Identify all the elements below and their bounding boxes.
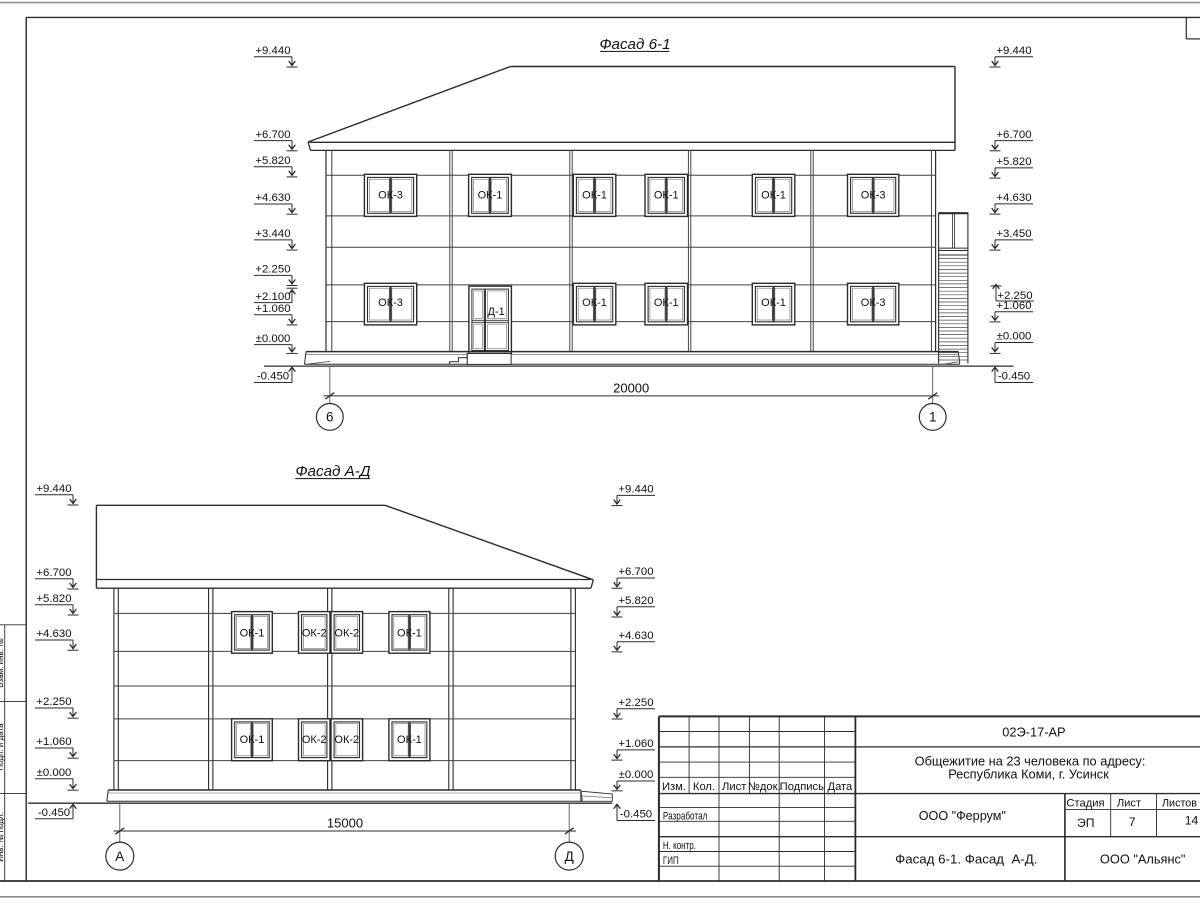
svg-text:±0.000: ±0.000 — [997, 331, 1032, 343]
svg-text:ОК-1: ОК-1 — [397, 734, 422, 746]
svg-text:Д-1: Д-1 — [487, 306, 504, 318]
svg-text:ОК-1: ОК-1 — [654, 189, 679, 201]
svg-text:+6.700: +6.700 — [618, 566, 653, 578]
svg-text:Кол.: Кол. — [693, 781, 715, 793]
svg-text:7: 7 — [1129, 815, 1136, 829]
svg-text:+3.450: +3.450 — [996, 228, 1031, 240]
svg-text:-0.450: -0.450 — [620, 809, 652, 821]
svg-text:+1.060: +1.060 — [255, 303, 290, 315]
svg-text:+2.100: +2.100 — [255, 291, 290, 303]
svg-text:Подпись: Подпись — [780, 781, 824, 793]
svg-text:ОК-1: ОК-1 — [240, 734, 265, 746]
svg-text:+2.250: +2.250 — [255, 264, 290, 276]
svg-text:-0.450: -0.450 — [38, 807, 70, 819]
svg-text:ОК-1: ОК-1 — [240, 627, 265, 639]
svg-text:14: 14 — [1185, 814, 1199, 828]
svg-text:Республика Коми, г. Усинск: Республика Коми, г. Усинск — [948, 767, 1109, 782]
svg-text:15000: 15000 — [327, 815, 363, 830]
svg-text:+4.630: +4.630 — [996, 192, 1031, 204]
svg-text:Подп. и дата: Подп. и дата — [0, 723, 5, 771]
svg-text:Лист: Лист — [722, 781, 746, 793]
svg-text:Стадия: Стадия — [1066, 798, 1104, 810]
svg-text:ООО "Альянс": ООО "Альянс" — [1100, 851, 1186, 866]
svg-text:+3.440: +3.440 — [255, 228, 290, 240]
svg-text:+2.250: +2.250 — [618, 697, 653, 709]
svg-text:ОК-2: ОК-2 — [302, 627, 327, 639]
svg-text:+5.820: +5.820 — [618, 595, 653, 607]
svg-text:+1.060: +1.060 — [36, 736, 71, 748]
svg-text:+9.440: +9.440 — [36, 483, 71, 495]
svg-text:ОК-3: ОК-3 — [378, 189, 403, 201]
svg-text:+6.700: +6.700 — [36, 567, 71, 579]
svg-text:+5.820: +5.820 — [255, 155, 290, 167]
svg-text:1: 1 — [929, 410, 937, 425]
svg-text:ОК-3: ОК-3 — [861, 297, 886, 309]
svg-text:+6.700: +6.700 — [996, 129, 1031, 141]
svg-text:ОК-2: ОК-2 — [334, 627, 359, 639]
svg-text:Лист: Лист — [1117, 798, 1141, 810]
svg-text:±0.000: ±0.000 — [256, 333, 291, 345]
svg-text:20000: 20000 — [613, 380, 649, 395]
svg-text:ОК-1: ОК-1 — [654, 297, 679, 309]
svg-text:+5.820: +5.820 — [996, 156, 1031, 168]
svg-text:+4.630: +4.630 — [36, 628, 71, 640]
svg-text:+1.060: +1.060 — [618, 738, 653, 750]
svg-text:+5.820: +5.820 — [36, 593, 71, 605]
svg-text:+4.630: +4.630 — [618, 630, 653, 642]
svg-text:Фасад 6-1. Фасад А-Д.: Фасад 6-1. Фасад А-Д. — [895, 851, 1037, 866]
svg-text:ГИП: ГИП — [663, 855, 679, 867]
svg-text:А: А — [115, 849, 124, 864]
svg-text:-0.450: -0.450 — [257, 371, 289, 383]
svg-text:ОК-1: ОК-1 — [582, 297, 607, 309]
svg-text:ОК-1: ОК-1 — [582, 189, 607, 201]
svg-text:ОК-1: ОК-1 — [478, 189, 503, 201]
svg-text:Инв. № подл.: Инв. № подл. — [0, 812, 5, 862]
svg-text:-0.450: -0.450 — [998, 371, 1030, 383]
svg-text:+9.440: +9.440 — [618, 484, 653, 496]
svg-text:Фасад А-Д: Фасад А-Д — [295, 463, 370, 480]
svg-text:ООО "Феррум": ООО "Феррум" — [919, 809, 1006, 823]
svg-text:Фасад 6-1: Фасад 6-1 — [599, 36, 670, 53]
svg-text:+6.700: +6.700 — [255, 129, 290, 141]
svg-text:ОК-1: ОК-1 — [397, 627, 422, 639]
svg-text:+4.630: +4.630 — [255, 192, 290, 204]
svg-text:02Э-17-АР: 02Э-17-АР — [1002, 725, 1065, 740]
svg-text:ОК-1: ОК-1 — [761, 189, 786, 201]
svg-text:Д: Д — [565, 849, 574, 864]
svg-text:Разработал: Разработал — [663, 810, 708, 822]
svg-text:±0.000: ±0.000 — [37, 767, 72, 779]
svg-text:№док.: №док. — [748, 781, 781, 793]
svg-text:ОК-2: ОК-2 — [334, 734, 359, 746]
svg-text:ОК-2: ОК-2 — [302, 734, 327, 746]
svg-text:Изм.: Изм. — [662, 781, 686, 793]
svg-text:ЭП: ЭП — [1077, 816, 1095, 830]
svg-text:ОК-3: ОК-3 — [378, 297, 403, 309]
svg-text:Взам. инв. №: Взам. инв. № — [0, 638, 5, 688]
svg-text:Дата: Дата — [828, 781, 854, 793]
svg-text:Н. контр.: Н. контр. — [663, 840, 696, 852]
svg-text:ОК-3: ОК-3 — [861, 189, 886, 201]
svg-text:+9.440: +9.440 — [255, 45, 290, 57]
svg-text:+1.060: +1.060 — [996, 300, 1031, 312]
svg-text:6: 6 — [326, 410, 334, 425]
svg-text:+9.440: +9.440 — [996, 45, 1031, 57]
svg-text:ОК-1: ОК-1 — [761, 297, 786, 309]
svg-text:±0.000: ±0.000 — [619, 769, 654, 781]
svg-text:Листов: Листов — [1162, 798, 1197, 810]
svg-text:+2.250: +2.250 — [36, 696, 71, 708]
